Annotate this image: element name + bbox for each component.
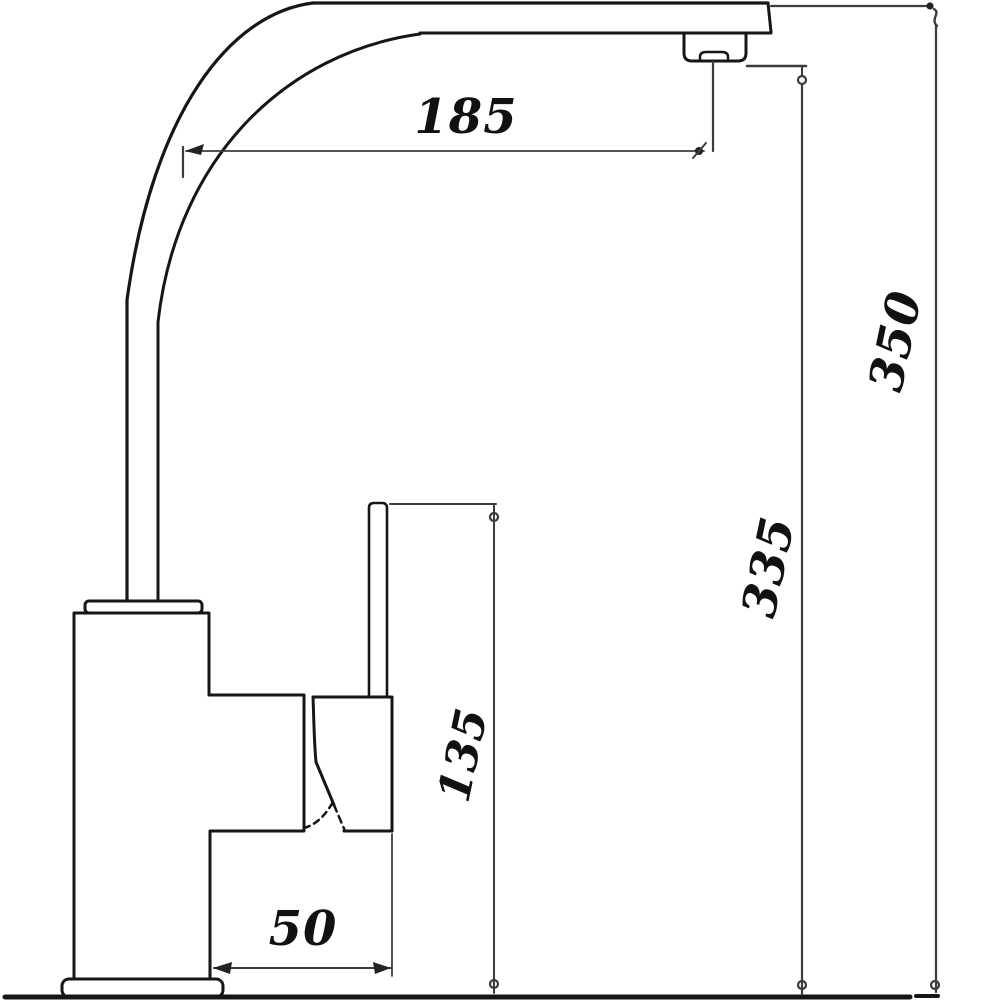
dim-50-left-dot bbox=[223, 965, 229, 971]
spout-inner-curve bbox=[158, 34, 420, 601]
dim-335-top-ring bbox=[798, 76, 806, 84]
handle-tilt-edge bbox=[316, 762, 334, 805]
dim-350-top-dot bbox=[926, 2, 933, 9]
dim-350-squiggle bbox=[934, 9, 937, 26]
faucet-line-art bbox=[0, 0, 1000, 1000]
nozzle bbox=[684, 34, 746, 61]
spout-end-cap bbox=[768, 3, 771, 32]
dimension-label-185: 185 bbox=[414, 93, 517, 141]
dim-185-left-arrow bbox=[185, 144, 204, 155]
base-plate bbox=[62, 979, 223, 997]
dimension-label-50: 50 bbox=[269, 905, 338, 953]
mounting-collar bbox=[85, 601, 202, 613]
dim-350 bbox=[771, 2, 939, 992]
faucet-technical-drawing: 185 350 335 135 50 bbox=[0, 0, 1000, 1000]
dim-50-right-dot bbox=[376, 965, 382, 971]
handle-swing-arc bbox=[304, 800, 334, 828]
handle-lever-rod bbox=[369, 503, 387, 697]
handle-tilt-edge-hidden bbox=[334, 805, 345, 831]
handle-block bbox=[313, 697, 392, 831]
faucet-outline bbox=[5, 3, 938, 997]
dimension-lines bbox=[183, 2, 939, 994]
spout-outer-curve bbox=[127, 3, 313, 601]
